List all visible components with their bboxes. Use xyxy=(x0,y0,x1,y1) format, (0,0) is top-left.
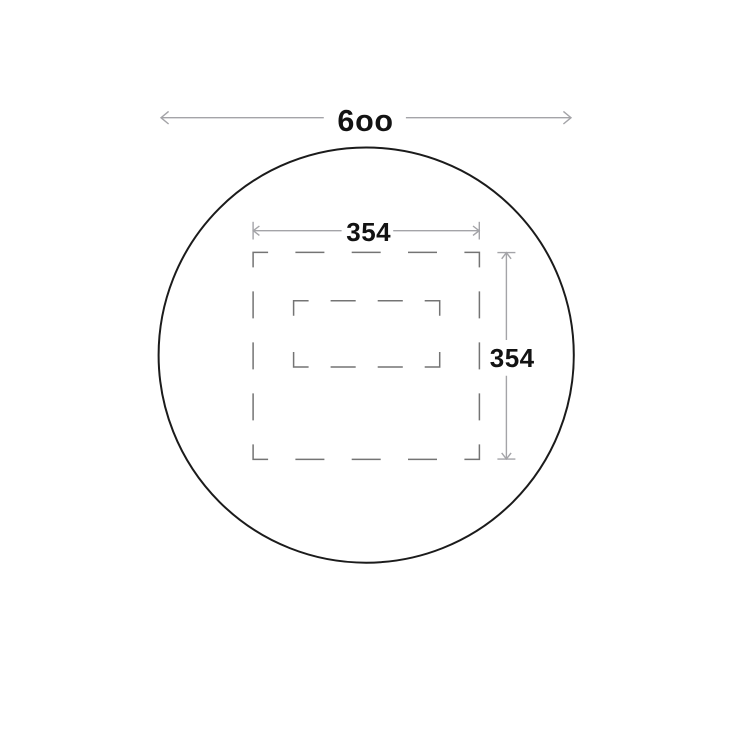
svg-text:6oo: 6oo xyxy=(337,104,393,138)
svg-text:354: 354 xyxy=(490,343,535,373)
svg-text:354: 354 xyxy=(346,217,391,247)
